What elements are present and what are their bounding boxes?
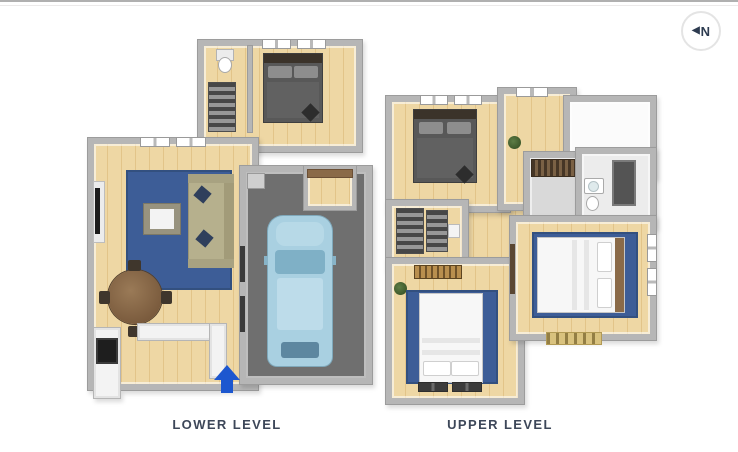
living-room	[88, 138, 258, 390]
upper-level-label: UPPER LEVEL	[400, 417, 600, 432]
sofa-armrest	[188, 174, 234, 183]
car-windshield	[275, 250, 325, 274]
pillow	[423, 361, 451, 376]
pillow	[597, 242, 612, 272]
throw-pillow	[195, 229, 213, 247]
lower-level-floorplan	[88, 40, 364, 386]
window	[420, 95, 448, 105]
window	[176, 137, 206, 147]
arrow-stem	[221, 380, 233, 393]
garage-door	[240, 246, 245, 282]
blanket-fold	[572, 240, 577, 310]
north-indicator: ◀ N	[681, 11, 721, 51]
car-roof	[277, 278, 323, 330]
bed	[420, 294, 482, 382]
garage	[240, 166, 372, 384]
sofa-armrest	[188, 259, 234, 268]
window	[647, 234, 657, 262]
garage-door	[240, 296, 245, 332]
pillow	[451, 361, 479, 376]
lower-bedroom	[198, 40, 362, 152]
bed	[538, 238, 624, 312]
sofa	[188, 174, 234, 268]
pillow	[597, 278, 612, 308]
pillow	[268, 66, 292, 78]
window	[418, 382, 448, 392]
staircase	[426, 210, 448, 252]
exterior-mat	[546, 332, 602, 345]
garage-closet	[304, 166, 356, 210]
chair	[161, 291, 172, 304]
interior-wall	[248, 46, 252, 132]
water-heater	[248, 174, 264, 188]
staircase	[396, 208, 424, 254]
car-mirror	[264, 256, 268, 265]
top-divider	[0, 0, 738, 2]
pillow	[294, 66, 318, 78]
closet-rod	[531, 159, 581, 177]
toilet	[586, 196, 599, 211]
shower	[612, 160, 636, 206]
sofa-back	[224, 174, 234, 268]
floorplan-page: ◀ N	[0, 0, 738, 452]
window	[140, 137, 170, 147]
headboard	[264, 54, 322, 63]
sink-basin	[588, 181, 599, 192]
blanket-fold	[422, 350, 480, 355]
arrow-head	[214, 365, 240, 380]
tv	[95, 188, 100, 234]
sink	[584, 178, 604, 194]
headboard	[414, 110, 476, 119]
window	[262, 39, 291, 49]
lower-level-label: LOWER LEVEL	[127, 417, 327, 432]
doorway-rug	[414, 265, 462, 279]
closet-shelf	[308, 170, 352, 177]
chair	[128, 260, 141, 271]
car-hood	[276, 222, 324, 246]
upper-bedroom-2	[386, 258, 524, 404]
toilet	[218, 57, 232, 73]
pillow	[419, 122, 443, 134]
north-label: N	[701, 25, 710, 38]
window	[454, 95, 482, 105]
door	[510, 244, 515, 294]
upper-level-floorplan	[378, 88, 652, 400]
basket	[448, 224, 460, 238]
staircase	[208, 82, 236, 132]
entrance-arrow-icon	[212, 365, 242, 397]
blanket-fold	[422, 338, 480, 343]
upper-bedroom-1	[386, 96, 510, 212]
throw-pillow	[193, 185, 211, 203]
coffee-table-tray	[150, 209, 174, 229]
window	[297, 39, 326, 49]
window	[452, 382, 482, 392]
car	[268, 216, 332, 366]
plant	[508, 136, 521, 149]
car-mirror	[332, 256, 336, 265]
window	[516, 87, 548, 97]
north-arrow-icon: ◀	[692, 26, 700, 36]
blanket-fold	[584, 240, 589, 310]
top-divider-faint	[0, 5, 738, 6]
coffee-table	[144, 204, 180, 234]
headboard	[615, 238, 624, 312]
car-rear-window	[281, 342, 319, 358]
stove	[96, 338, 118, 364]
window	[647, 268, 657, 296]
pillow	[447, 122, 471, 134]
upper-bedroom-3	[510, 216, 656, 340]
dining-table	[108, 270, 162, 324]
chair	[99, 291, 110, 304]
